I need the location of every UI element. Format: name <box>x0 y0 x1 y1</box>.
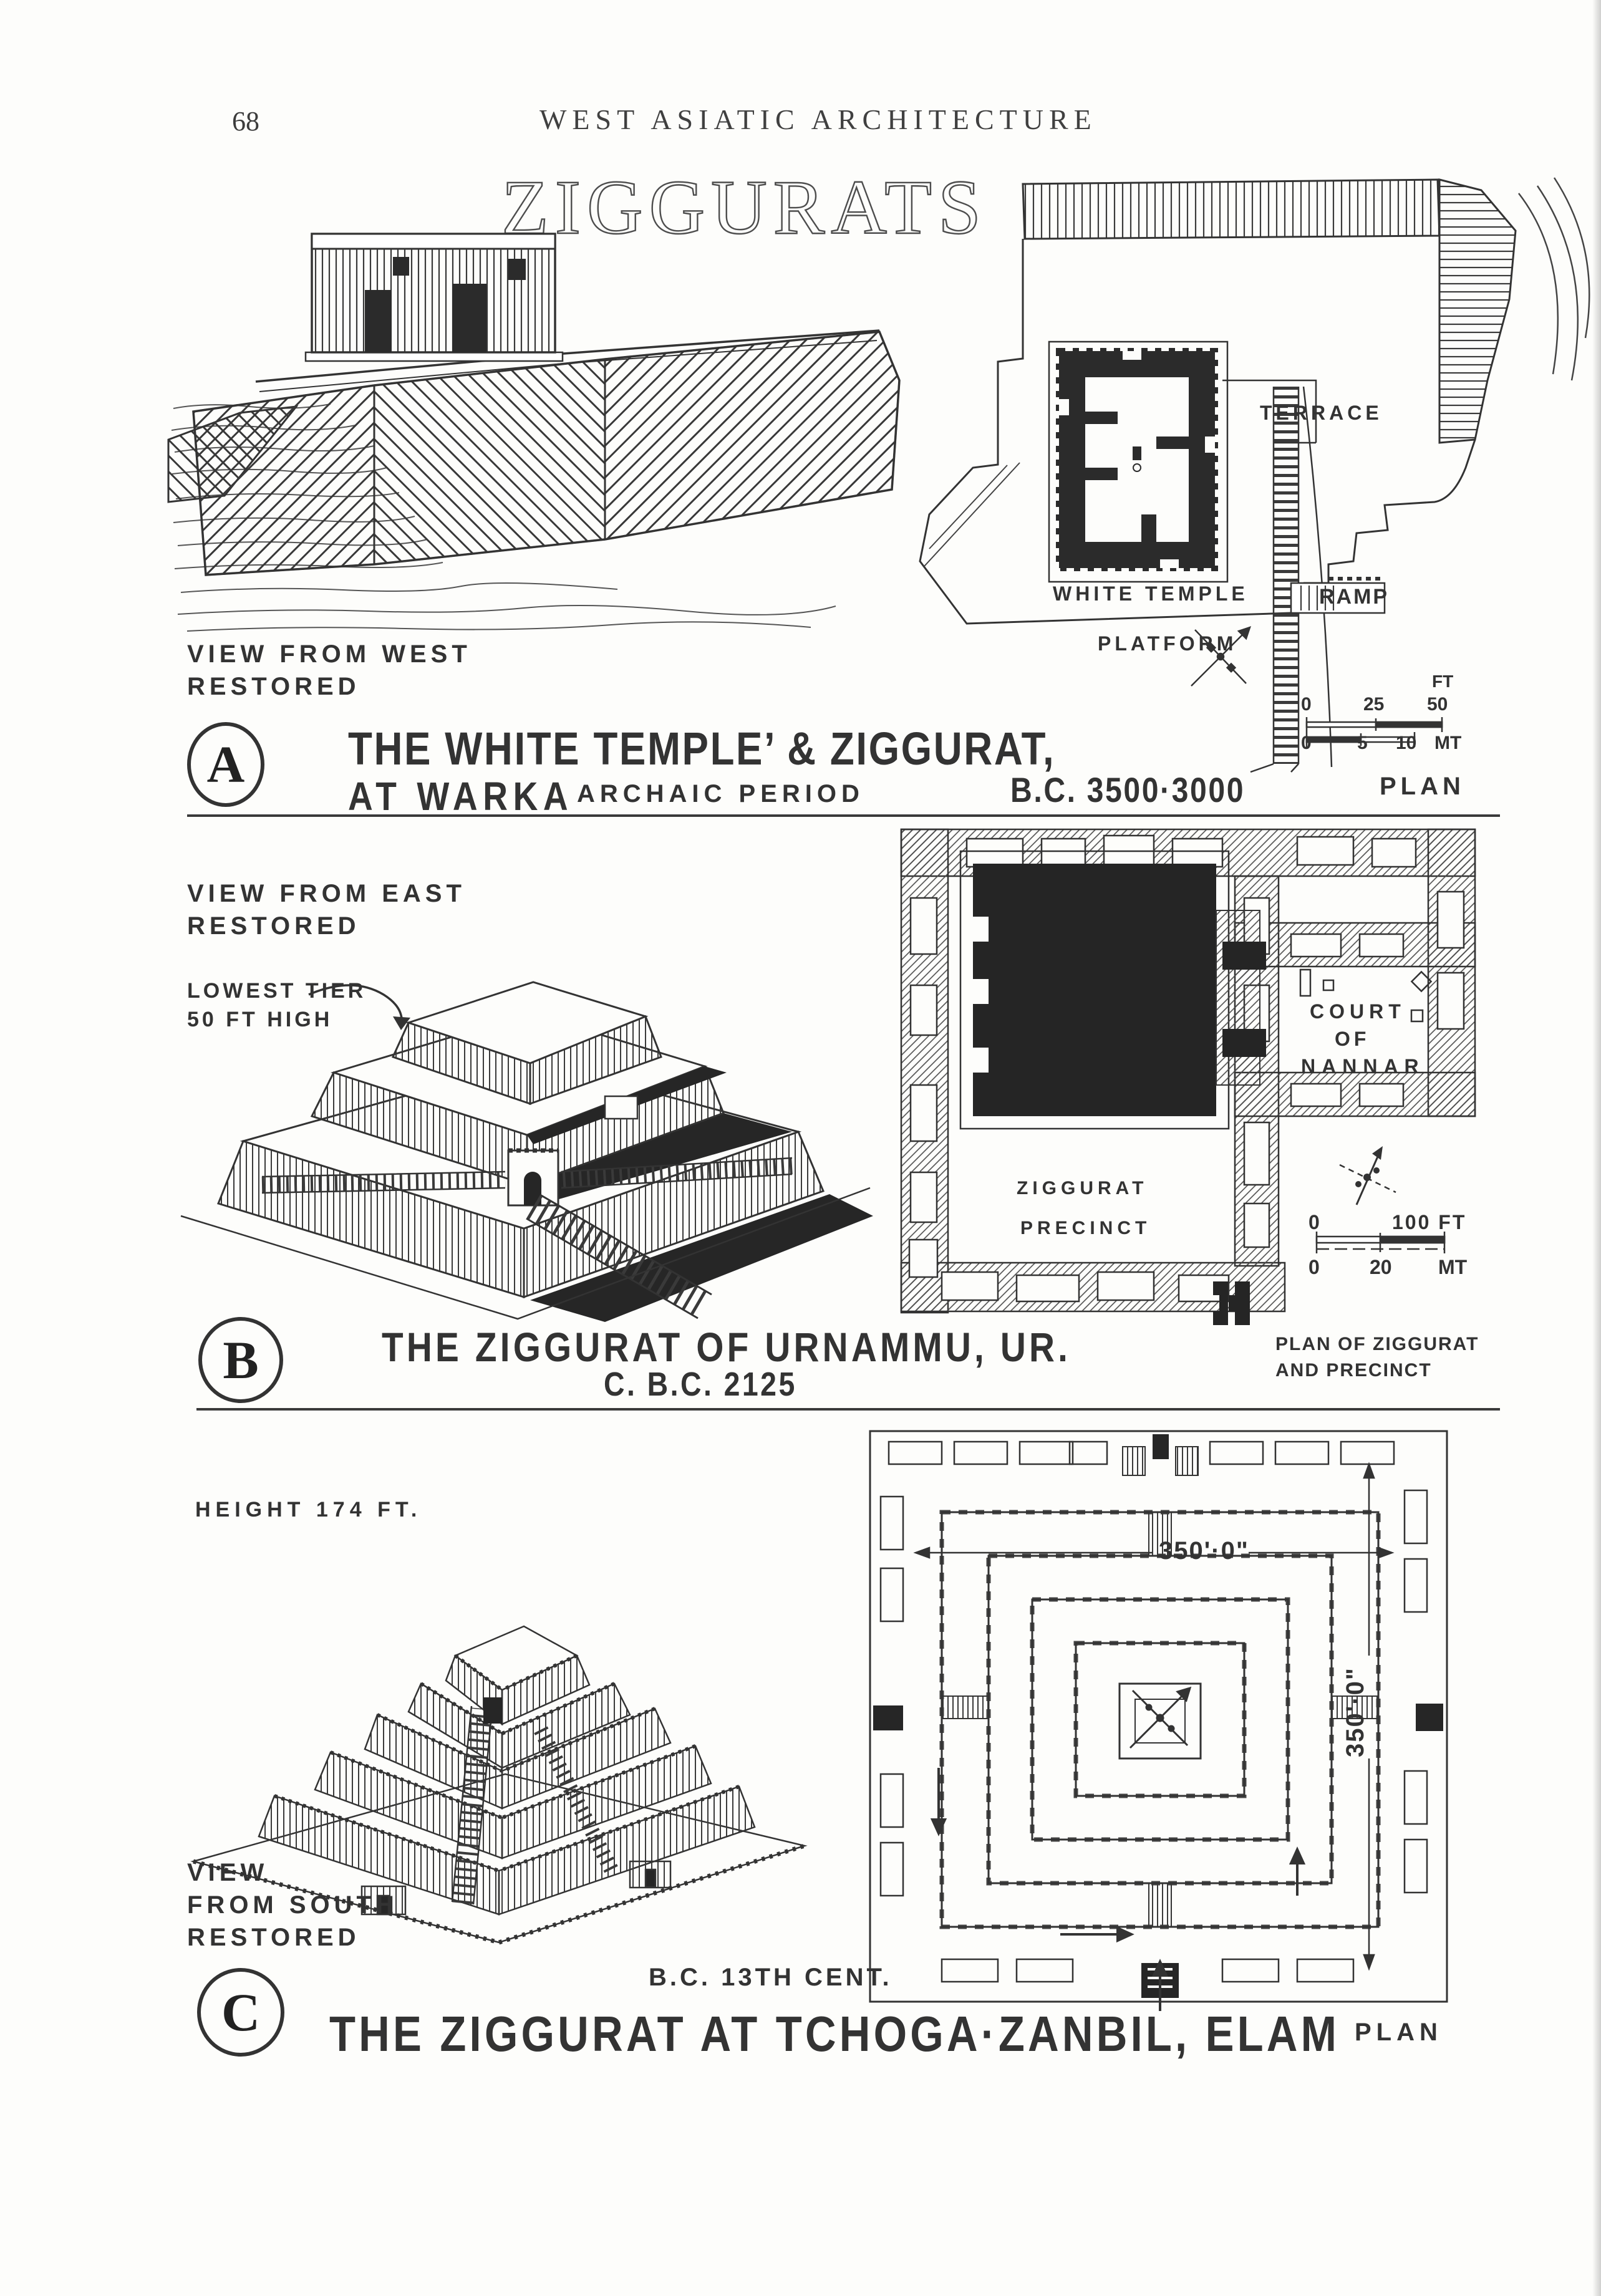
plan-a-white-temple-label: WHITE TEMPLE <box>1053 584 1249 605</box>
white-temple-plan <box>1049 342 1227 582</box>
scale-a-ft-unit: FT <box>1432 672 1453 690</box>
plan-a-platform-label: PLATFORM <box>1098 634 1237 655</box>
north-arrow-icon <box>1340 1146 1396 1205</box>
view-label-b-line2: RESTORED <box>187 913 360 939</box>
plan-b-court-label-1: COURT <box>1310 1001 1406 1023</box>
dimension-height-label: 350'·0" <box>1342 1667 1368 1757</box>
section-divider-2 <box>196 1408 1500 1411</box>
tier-note-line2: 50 FT HIGH <box>187 1009 332 1031</box>
scale-a-mt-unit: MT <box>1434 733 1461 753</box>
scale-a-ft-50: 50 <box>1427 695 1448 715</box>
north-arrow-icon <box>1130 1688 1190 1748</box>
terrace-edge <box>1304 440 1475 583</box>
view-label-a-line2: RESTORED <box>187 673 360 700</box>
plan-c-plan-label: PLAN <box>1355 2019 1443 2045</box>
scale-a-mt-0: 0 <box>1301 733 1312 753</box>
scale-b-mt-20: 20 <box>1370 1257 1392 1278</box>
gate-tower <box>508 1150 558 1205</box>
ur-perspective-drawing <box>168 892 886 1322</box>
view-label-c-line2: FROM SOUTH <box>187 1892 399 1918</box>
plan-b-note-line1: PLAN OF ZIGGURAT <box>1275 1334 1479 1354</box>
scale-a-ft-25: 25 <box>1363 695 1384 715</box>
ziggurat-core <box>960 851 1266 1129</box>
date-note-c: B.C. 13TH CENT. <box>649 1964 892 1990</box>
caption-a-date: B.C. 3500·3000 <box>1010 772 1283 809</box>
scale-a-mt-5: 5 <box>1357 733 1368 753</box>
tchoga-zanbil-plan-drawing <box>861 1422 1484 2014</box>
height-note: HEIGHT 174 FT. <box>195 1499 422 1522</box>
plan-b-note-line2: AND PRECINCT <box>1275 1361 1432 1381</box>
warka-plan-drawing <box>892 175 1601 773</box>
plan-a-plan-label: PLAN <box>1380 773 1465 799</box>
view-label-b-line1: VIEW FROM EAST <box>187 880 466 907</box>
page-header: WEST ASIATIC ARCHITECTURE <box>539 105 1097 135</box>
scale-bar <box>1317 1232 1444 1253</box>
plan-b-precinct-label: PRECINCT <box>1020 1218 1151 1238</box>
tier-note-line1: LOWEST TIER <box>187 980 366 1003</box>
view-label-c-line1: VIEW <box>187 1859 268 1886</box>
scale-a-ft-0: 0 <box>1301 695 1312 715</box>
scale-bar-feet <box>1307 717 1442 732</box>
caption-a-title: THE WHITE TEMPLE’ & ZIGGURAT, <box>348 725 1171 773</box>
section-divider-1 <box>187 814 1500 817</box>
plan-a-terrace-label: TERRACE <box>1260 403 1383 424</box>
figure-badge-a-letter: A <box>207 735 245 795</box>
warka-perspective-drawing <box>168 224 907 636</box>
plan-a-ramp-label: RAMP <box>1319 586 1389 609</box>
plan-b-ziggurat-label: ZIGGURAT <box>1017 1179 1148 1199</box>
caption-c-title: THE ZIGGURAT AT TCHOGA·ZANBIL, ELAM <box>329 2008 1504 2060</box>
scale-a-mt-10: 10 <box>1396 733 1416 753</box>
figure-badge-b-letter: B <box>223 1329 258 1391</box>
figure-badge-c: C <box>197 1968 284 2057</box>
plan-b-court-label-3: NANNAR <box>1301 1056 1425 1078</box>
caption-a-period: ARCHAIC PERIOD <box>577 781 864 807</box>
figure-badge-c-letter: C <box>221 1981 260 2043</box>
terrace-top-band <box>1023 180 1439 239</box>
page-number: 68 <box>232 107 259 136</box>
scale-b-mt-0: 0 <box>1308 1257 1320 1278</box>
caption-b-title: THE ZIGGURAT OF URNAMMU, UR. <box>382 1326 1183 1369</box>
ziggurat-mound <box>193 330 899 575</box>
scale-b-ft-100: 100 FT <box>1392 1212 1466 1233</box>
figure-badge-b: B <box>198 1317 283 1403</box>
caption-b-subtitle: C. B.C. 2125 <box>604 1367 828 1402</box>
terrace-right-band <box>1439 180 1516 443</box>
edge-contours <box>1519 178 1589 380</box>
page-edge-shade <box>1592 0 1601 2296</box>
view-label-a-line1: VIEW FROM WEST <box>187 641 472 667</box>
rooftop-shrine <box>605 1096 637 1119</box>
book-page: 68 WEST ASIATIC ARCHITECTURE ZIGGURATS <box>0 0 1601 2296</box>
white-temple-building <box>306 234 563 361</box>
dimension-width-label: 350'·0" <box>1159 1538 1249 1564</box>
caption-a-subtitle: AT WARKA <box>348 776 610 818</box>
scale-b-mt-unit: MT <box>1438 1257 1467 1278</box>
plan-b-court-label-2: OF <box>1335 1029 1370 1050</box>
figure-badge-a: A <box>187 722 264 807</box>
scale-b-ft-0: 0 <box>1308 1212 1320 1233</box>
view-label-c-line3: RESTORED <box>187 1924 360 1951</box>
